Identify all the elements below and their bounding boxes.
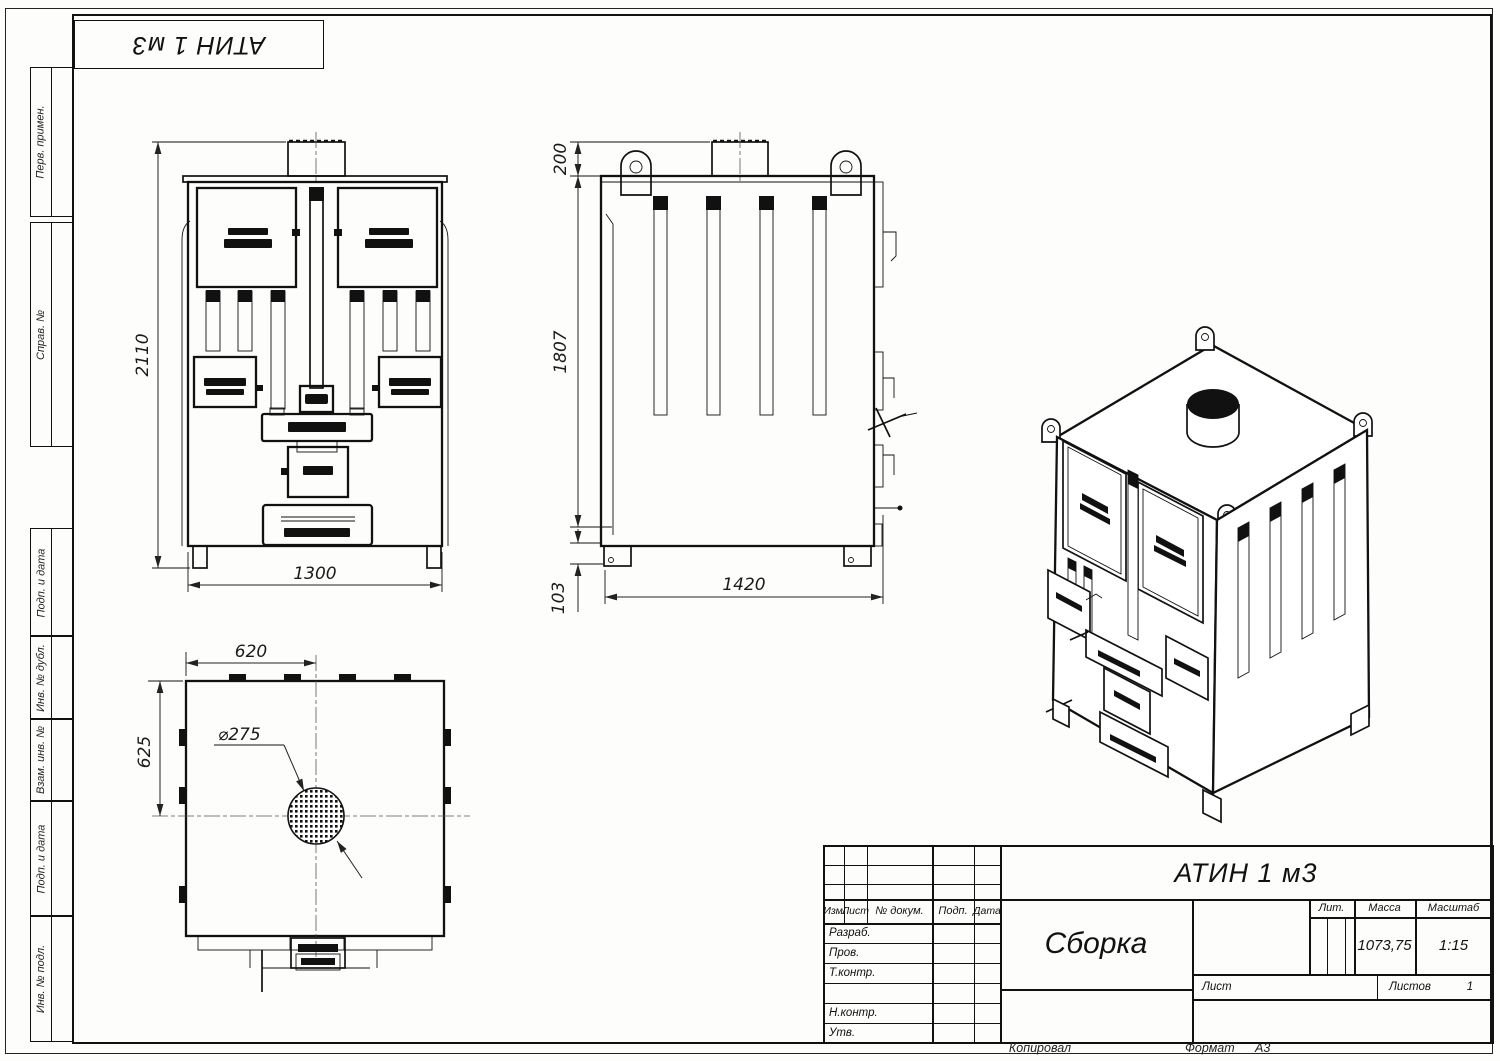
role-tkontr: Т.контр. xyxy=(825,963,929,983)
format-label: Формат xyxy=(1185,1041,1245,1054)
dim-side-base: 103 xyxy=(549,582,569,614)
mass-label: Масса xyxy=(1354,899,1415,917)
front-door-left xyxy=(197,188,296,287)
title-block: Изм. Лист № докум. Подп. Дата Разраб. Пр… xyxy=(823,845,1494,1044)
dim-front-height: 2110 xyxy=(133,333,153,376)
front-view: 2110 1300 xyxy=(133,132,448,592)
col-podp: Подп. xyxy=(932,899,974,923)
side-view: 200 1807 103 1420 xyxy=(549,132,917,614)
scale-value: 1:15 xyxy=(1415,917,1492,974)
col-doc-num: № докум. xyxy=(867,899,932,923)
doc-name: Сборка xyxy=(1000,901,1192,987)
dim-chimney-diameter: ⌀275 xyxy=(218,725,261,745)
isometric-view xyxy=(1042,327,1372,822)
door-label-plate xyxy=(228,228,268,235)
kopiroval-label: Копировал xyxy=(960,1041,1120,1054)
dim-top-depth: 625 xyxy=(135,736,155,768)
format-value: А3 xyxy=(1255,1041,1295,1054)
mass-value: 1073,75 xyxy=(1354,917,1415,974)
door-label-plate xyxy=(369,228,409,235)
dim-side-depth: 1420 xyxy=(722,575,765,595)
role-utv: Утв. xyxy=(825,1023,929,1042)
role-nkontr: Н.контр. xyxy=(825,1003,929,1023)
dim-top-width: 620 xyxy=(235,642,267,662)
dim-side-height: 1807 xyxy=(551,330,571,373)
chimney-opening xyxy=(288,788,344,844)
doc-designation: АТИН 1 м3 xyxy=(1000,847,1492,899)
role-razrab: Разраб. xyxy=(825,923,929,943)
drawing-sheet: АТИН 1 м3 Перв. примен. Справ. № Подп. и… xyxy=(0,0,1500,1061)
dim-front-width: 1300 xyxy=(293,564,336,584)
lit-label: Лит. xyxy=(1309,899,1354,917)
role-prov: Пров. xyxy=(825,943,929,963)
col-list: Лист xyxy=(844,899,867,923)
scale-label: Масштаб xyxy=(1415,899,1492,917)
sheet-label: Лист xyxy=(1192,974,1387,999)
sheets-label: Листов xyxy=(1377,974,1459,999)
col-data: Дата xyxy=(974,899,1000,923)
dim-side-top: 200 xyxy=(551,143,571,175)
iso-chimney xyxy=(1187,389,1239,419)
top-view: 620 625 ⌀275 xyxy=(135,642,470,992)
sheets-value: 1 xyxy=(1455,974,1485,999)
front-ash-tray xyxy=(263,505,372,545)
front-door-right xyxy=(338,188,437,287)
